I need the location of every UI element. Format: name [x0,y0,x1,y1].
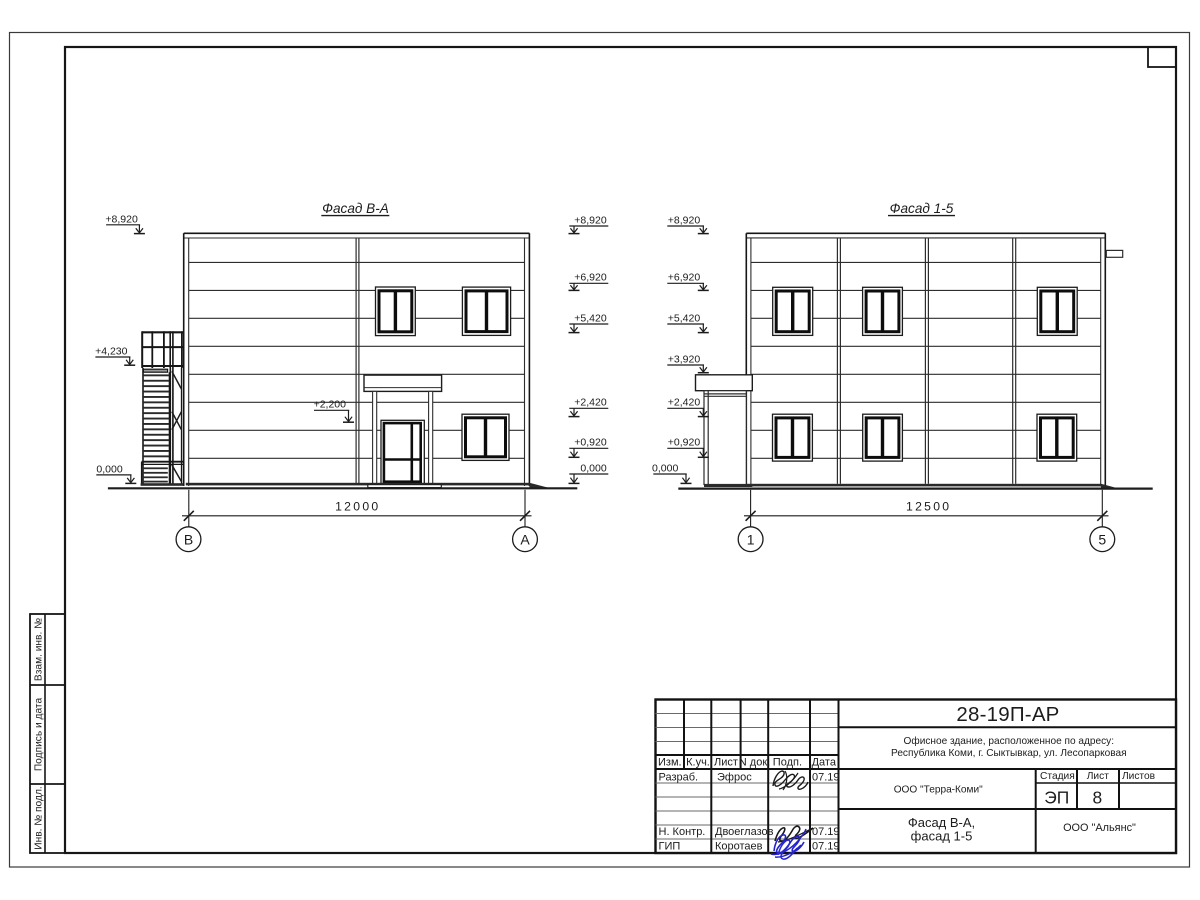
svg-text:+6,920: +6,920 [668,272,701,284]
svg-text:ООО "Альянс": ООО "Альянс" [1063,822,1136,834]
svg-text:Фасад В-А: Фасад В-А [322,201,389,216]
svg-text:К.уч.: К.уч. [686,757,710,769]
svg-text:Лист: Лист [1087,771,1109,782]
svg-text:Стадия: Стадия [1040,771,1075,782]
svg-text:5: 5 [1098,531,1106,547]
svg-text:+0,920: +0,920 [668,437,701,449]
svg-text:12000: 12000 [335,500,380,514]
svg-text:ООО "Терра-Коми": ООО "Терра-Коми" [894,784,983,795]
svg-text:0,000: 0,000 [652,462,678,474]
svg-text:0,000: 0,000 [580,462,606,474]
svg-text:А: А [520,531,530,547]
svg-text:+8,920: +8,920 [574,214,607,226]
svg-text:+0,920: +0,920 [574,437,607,449]
svg-text:28-19П-АР: 28-19П-АР [956,703,1059,726]
svg-text:В: В [184,531,193,547]
svg-text:07.19: 07.19 [812,841,840,853]
svg-text:0,000: 0,000 [96,464,122,476]
svg-text:+2,200: +2,200 [314,399,347,411]
svg-text:+8,920: +8,920 [668,214,701,226]
svg-text:ЭП: ЭП [1044,787,1069,807]
svg-text:+2,420: +2,420 [574,397,607,409]
svg-text:Изм.: Изм. [658,757,682,769]
svg-text:Лист: Лист [714,757,738,769]
svg-text:+2,420: +2,420 [668,397,701,409]
svg-text:+5,420: +5,420 [668,312,701,324]
svg-text:Дата: Дата [812,757,837,769]
svg-text:12500: 12500 [906,500,951,514]
svg-text:+8,920: +8,920 [105,213,138,225]
svg-text:фасад 1-5: фасад 1-5 [911,829,973,844]
svg-text:+5,420: +5,420 [574,312,607,324]
svg-text:07.19: 07.19 [812,826,840,838]
svg-text:Взам. инв. №: Взам. инв. № [34,618,45,681]
svg-text:1: 1 [747,531,755,547]
svg-text:Н. Контр.: Н. Контр. [659,826,706,838]
svg-text:+4,230: +4,230 [95,346,128,358]
svg-text:Подпись и дата: Подпись и дата [34,698,45,772]
svg-text:Разраб.: Разраб. [659,771,699,783]
svg-text:Эфрос: Эфрос [717,771,752,783]
svg-text:8: 8 [1092,787,1102,807]
svg-text:Коротаев: Коротаев [715,841,763,853]
svg-text:N док.: N док. [739,757,770,769]
svg-text:Листов: Листов [1122,771,1155,782]
svg-text:Республика Коми, г. Сыктывкар,: Республика Коми, г. Сыктывкар, ул. Лесоп… [891,747,1127,759]
svg-text:07.19: 07.19 [812,771,840,783]
svg-text:+6,920: +6,920 [574,272,607,284]
svg-text:Подп.: Подп. [773,757,802,769]
svg-text:ГИП: ГИП [659,841,681,853]
svg-text:Инв. № подл.: Инв. № подл. [34,786,45,849]
svg-text:Фасад 1-5: Фасад 1-5 [890,201,954,216]
svg-text:+3,920: +3,920 [668,353,701,365]
svg-text:Двоеглазов: Двоеглазов [715,826,774,838]
svg-text:Офисное здание, расположенное: Офисное здание, расположенное по адресу: [904,735,1115,747]
